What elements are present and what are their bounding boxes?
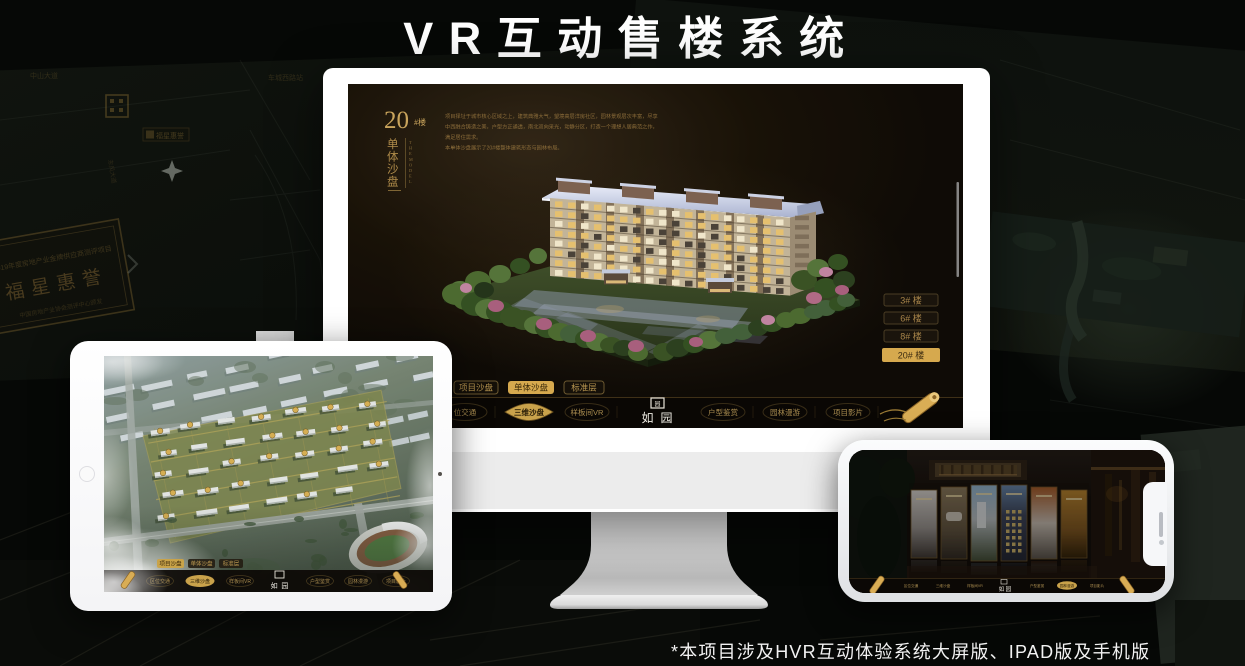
- svg-text:如 园: 如 园: [271, 581, 290, 590]
- svg-text:20: 20: [384, 107, 409, 134]
- svg-text:园林漫游: 园林漫游: [348, 578, 368, 585]
- svg-text:园林漫游: 园林漫游: [1060, 583, 1075, 588]
- svg-text:如 园: 如 园: [641, 410, 674, 425]
- svg-text:区位交通: 区位交通: [904, 583, 919, 588]
- svg-text:沙: 沙: [387, 163, 399, 176]
- svg-text:本单体沙盘展示了20#楼整体建筑形态与园林布局。: 本单体沙盘展示了20#楼整体建筑形态与园林布局。: [445, 144, 563, 152]
- svg-text:三维沙盘: 三维沙盘: [936, 583, 951, 588]
- svg-text:样板间VR: 样板间VR: [967, 583, 983, 588]
- svg-text:3# 楼: 3# 楼: [900, 295, 922, 306]
- svg-text:M: M: [409, 157, 413, 162]
- svg-text:T: T: [409, 140, 412, 145]
- svg-text:位交通: 位交通: [454, 407, 477, 417]
- svg-text:D: D: [409, 168, 412, 173]
- svg-text:如 园: 如 园: [999, 585, 1012, 593]
- svg-text:项目择址于城市核心区域之上，建筑典雅大气，望境高层洋房社区，: 项目择址于城市核心区域之上，建筑典雅大气，望境高层洋房社区，园林景观层次丰富，尽…: [445, 112, 658, 120]
- svg-text:E: E: [409, 174, 412, 179]
- svg-text:三维沙盘: 三维沙盘: [514, 407, 544, 417]
- svg-text:体: 体: [387, 150, 399, 164]
- svg-text:标准层: 标准层: [223, 560, 240, 568]
- svg-text:盘: 盘: [387, 175, 399, 189]
- svg-text:L: L: [409, 179, 412, 184]
- svg-text:8# 楼: 8# 楼: [900, 331, 922, 342]
- svg-text:样板间VR: 样板间VR: [229, 578, 251, 585]
- svg-text:6# 楼: 6# 楼: [900, 313, 922, 324]
- svg-text:三维沙盘: 三维沙盘: [190, 578, 210, 585]
- svg-text:单体沙盘: 单体沙盘: [190, 560, 213, 568]
- svg-text:单体沙盘: 单体沙盘: [514, 383, 549, 393]
- svg-text:项目影片: 项目影片: [833, 407, 863, 417]
- svg-text:项目影片: 项目影片: [1090, 583, 1105, 588]
- svg-text:O: O: [409, 162, 412, 167]
- svg-text:福星惠誉: 福星惠誉: [156, 131, 184, 140]
- svg-text:中山大道: 中山大道: [30, 71, 58, 80]
- svg-text:园林漫游: 园林漫游: [770, 407, 800, 417]
- svg-text:户型鉴赏: 户型鉴赏: [708, 407, 738, 417]
- svg-text:项目沙盘: 项目沙盘: [159, 560, 182, 568]
- svg-text:满足居住需求。: 满足居住需求。: [445, 133, 481, 141]
- svg-text:中西融合铸造之美，户型方正通透，南北双向采光，动静分区，打造: 中西融合铸造之美，户型方正通透，南北双向采光，动静分区，打造一个理想人居典范之作…: [445, 123, 658, 131]
- svg-text:#楼: #楼: [414, 117, 426, 127]
- svg-text:项目沙盘: 项目沙盘: [459, 383, 494, 393]
- svg-text:E: E: [409, 151, 412, 156]
- svg-text:户型鉴赏: 户型鉴赏: [1030, 583, 1045, 588]
- svg-text:标准层: 标准层: [571, 383, 597, 393]
- svg-text:户型鉴赏: 户型鉴赏: [310, 578, 330, 585]
- svg-text:H: H: [409, 146, 412, 151]
- svg-text:20# 楼: 20# 楼: [898, 350, 925, 361]
- svg-text:单: 单: [387, 138, 399, 151]
- svg-text:园: 园: [654, 401, 660, 408]
- svg-text:样板间VR: 样板间VR: [571, 407, 605, 417]
- svg-text:车城西路站: 车城西路站: [268, 73, 303, 82]
